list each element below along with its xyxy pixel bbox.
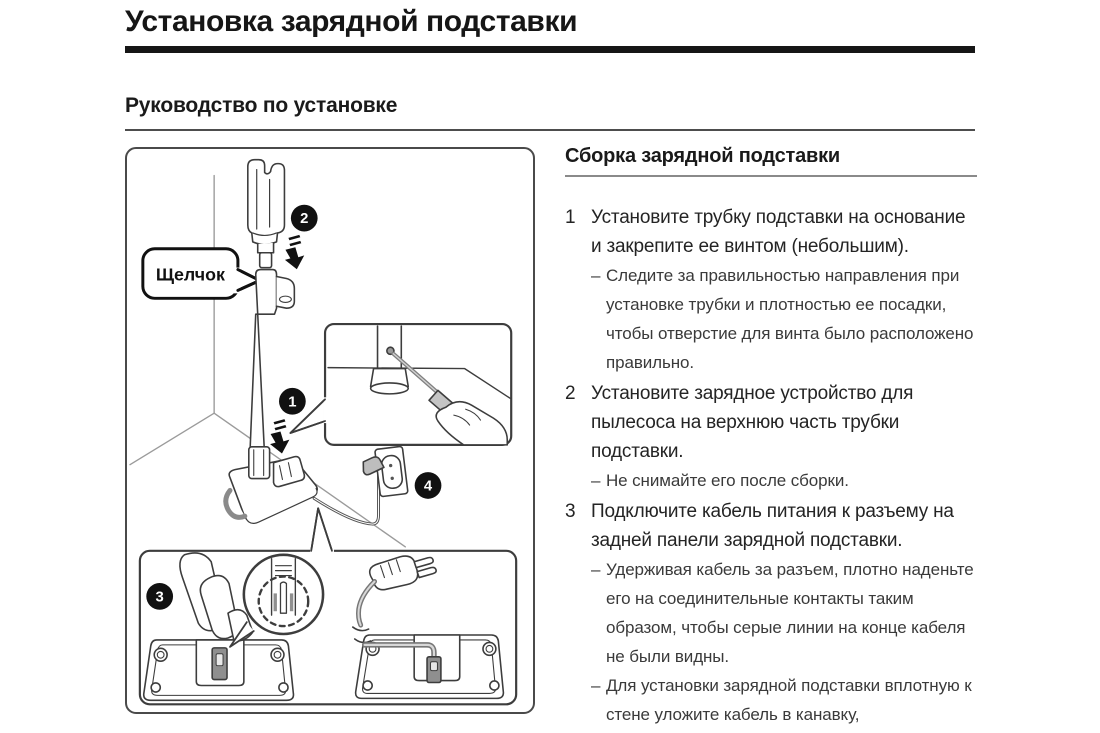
wall-outlet xyxy=(361,446,408,498)
step-note: –Следите за правильностью направления пр… xyxy=(591,261,977,377)
step-text: Установите трубку подставки на основание… xyxy=(591,203,977,261)
step-marker-1: 1 xyxy=(279,388,306,415)
down-arrow-1-icon xyxy=(270,419,289,453)
section-heading: Руководство по установке xyxy=(125,93,975,119)
note-dash: – xyxy=(591,671,606,733)
note-dash: – xyxy=(591,466,606,495)
step-note: –Не снимайте его после сборки. xyxy=(591,466,977,495)
title-divider-bar xyxy=(125,46,975,53)
step-note: –Удерживая кабель за разъем, плотно наде… xyxy=(591,555,977,671)
marker-1-label: 1 xyxy=(288,394,296,410)
instructions-rule xyxy=(565,175,977,177)
power-cable xyxy=(314,475,378,525)
instruction-step: 1Установите трубку подставки на основани… xyxy=(565,203,977,377)
assembly-instructions: Сборка зарядной подставки 1Установите тр… xyxy=(565,145,977,733)
cable-connection-inset: 3 xyxy=(140,508,516,704)
step-marker-2: 2 xyxy=(291,205,318,232)
note-text: Для установки зарядной подставки вплотну… xyxy=(606,671,977,733)
marker-2-label: 2 xyxy=(300,211,308,227)
marker-4-label: 4 xyxy=(424,478,433,494)
step-text: Установите зарядное устройство для пылес… xyxy=(591,379,977,466)
note-text: Удерживая кабель за разъем, плотно наден… xyxy=(606,555,977,671)
step-number: 3 xyxy=(565,497,591,733)
note-dash: – xyxy=(591,555,606,671)
installation-illustration: 2 Щелчок xyxy=(127,149,533,712)
step-marker-4: 4 xyxy=(415,472,442,499)
note-dash: – xyxy=(591,261,606,377)
screw-closeup-inset xyxy=(290,324,511,445)
manual-page: Установка зарядной подставки Руководство… xyxy=(0,0,1100,733)
installation-illustration-panel: 2 Щелчок xyxy=(125,147,535,714)
click-callout-label: Щелчок xyxy=(156,265,225,285)
instruction-step: 2Установите зарядное устройство для пыле… xyxy=(565,379,977,495)
note-text: Следите за правильностью направления при… xyxy=(606,261,977,377)
section-rule xyxy=(125,129,975,131)
instructions-heading: Сборка зарядной подставки xyxy=(565,145,977,168)
page-title: Установка зарядной подставки xyxy=(125,2,975,42)
instruction-step: 3Подключите кабель питания к разъему на … xyxy=(565,497,977,733)
note-text: Не снимайте его после сборки. xyxy=(606,466,977,495)
step-note: –Для установки зарядной подставки вплотн… xyxy=(591,671,977,733)
stand-base xyxy=(226,447,317,524)
marker-3-label: 3 xyxy=(156,589,164,605)
charger-bracket xyxy=(248,160,285,268)
stand-pole xyxy=(250,270,295,457)
step-text: Подключите кабель питания к разъему на з… xyxy=(591,497,977,555)
steps-list: 1Установите трубку подставки на основани… xyxy=(565,203,977,733)
click-callout-bubble: Щелчок xyxy=(143,249,260,299)
step-number: 2 xyxy=(565,379,591,495)
down-arrow-2-icon xyxy=(285,235,304,269)
base-underside-left xyxy=(144,640,294,700)
step-number: 1 xyxy=(565,203,591,377)
